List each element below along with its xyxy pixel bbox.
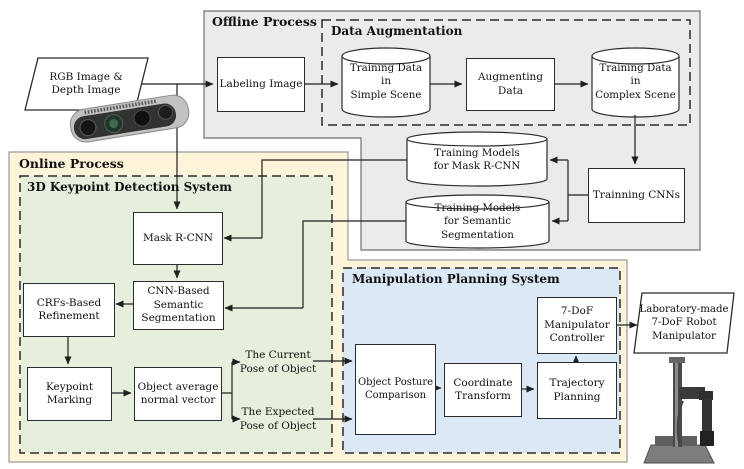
expected-pose-label: The ExpectedPose of Object	[238, 405, 318, 434]
coordinate-transform-box: CoordinateTransform	[444, 363, 522, 417]
crfs-refinement-box: CRFs-BasedRefinement	[23, 283, 115, 337]
models-mask-rcnn-label: Training Modelsfor Mask R-CNN	[409, 144, 545, 176]
robot-manipulator-illustration	[644, 357, 714, 463]
online-process-title: Online Process	[19, 156, 124, 171]
training-data-complex-label: Training Data inComplex Scene	[594, 62, 677, 102]
object-average-normal-vector-box: Object averagenormal vector	[134, 367, 222, 421]
cnn-semantic-segmentation-box: CNN-BasedSemanticSegmentation	[133, 281, 224, 330]
offline-process-title: Offline Process	[212, 14, 317, 29]
augmenting-data-box: AugmentingData	[466, 58, 555, 111]
robot-output-label: Laboratory-made7-DoF RobotManipulator	[638, 303, 730, 343]
keypoint-system-title: 3D Keypoint Detection System	[27, 180, 232, 194]
current-pose-label: The CurrentPose of Object	[238, 348, 318, 377]
object-posture-comparison-box: Object PostureComparison	[355, 344, 436, 435]
manipulator-controller-box: 7-DoFManipulatorController	[537, 297, 617, 354]
rgb-depth-input-label: RGB Image &Depth Image	[36, 70, 136, 98]
training-data-simple-label: Training Data inSimple Scene	[344, 62, 428, 102]
diagram-canvas: Offline Process Data Augmentation Online…	[0, 0, 744, 469]
models-semantic-label: Training Modelsfor Semantic Segmentation	[408, 206, 547, 238]
labeling-image-box: Labeling Image	[217, 57, 305, 112]
manipulation-system-title: Manipulation Planning System	[352, 272, 560, 286]
trainning-cnns-box: Trainning CNNs	[588, 168, 685, 223]
data-augmentation-title: Data Augmentation	[331, 24, 462, 38]
trajectory-planning-box: TrajectoryPlanning	[537, 362, 617, 419]
mask-rcnn-box: Mask R-CNN	[133, 212, 223, 265]
keypoint-marking-box: KeypointMarking	[27, 367, 112, 421]
